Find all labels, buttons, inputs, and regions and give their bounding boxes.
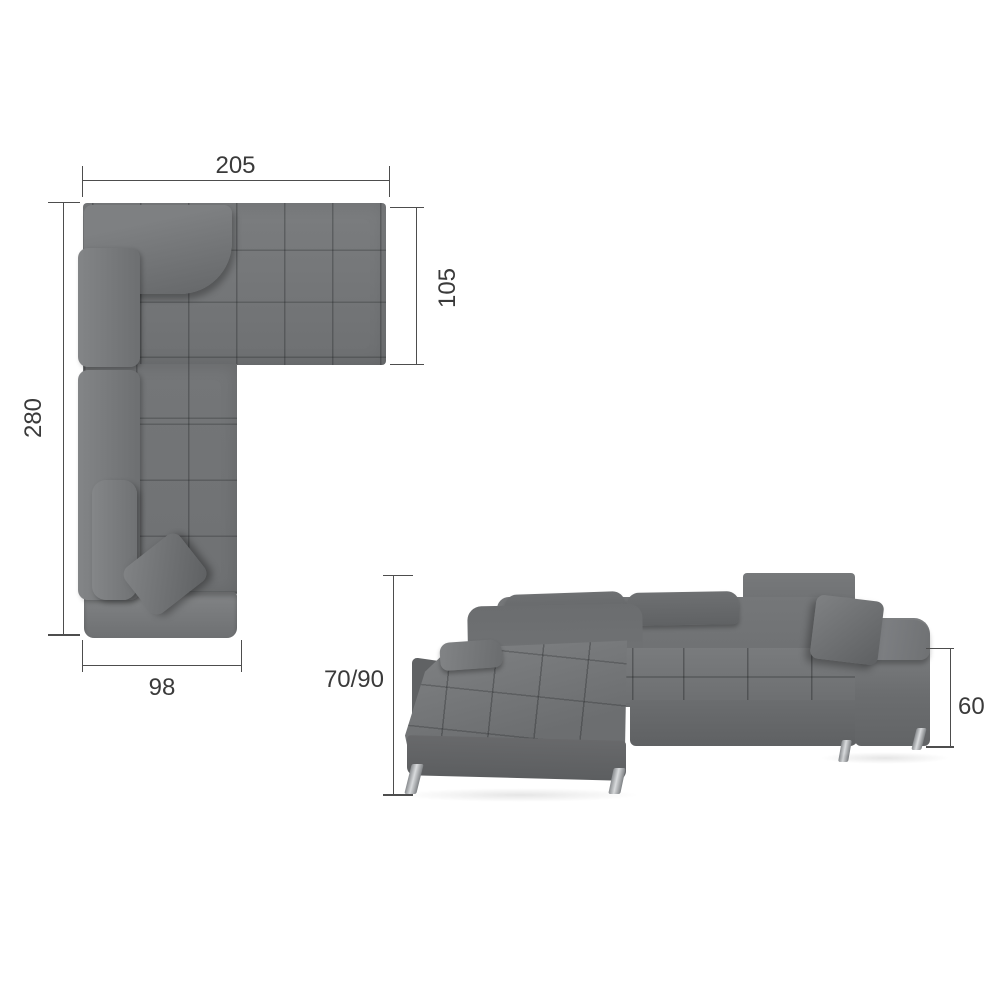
floor-shadow bbox=[820, 752, 950, 764]
dim-tick bbox=[383, 794, 413, 796]
dim-label-left-section-length: 280 bbox=[8, 392, 60, 444]
dim-label-text: 105 bbox=[436, 268, 460, 308]
front-view-headrest-middle bbox=[627, 591, 740, 626]
floor-shadow bbox=[400, 788, 640, 802]
dim-label-chaise-end-width: 98 bbox=[82, 676, 242, 700]
dim-line bbox=[950, 648, 952, 747]
dim-tick bbox=[241, 640, 243, 672]
front-view-armrest-left-pad bbox=[439, 639, 503, 671]
dim-tick bbox=[82, 640, 84, 672]
sofa-dimension-diagram: 205 105 280 98 bbox=[0, 0, 1000, 1000]
dim-label-backrest-height: 70/90 bbox=[318, 668, 384, 692]
dim-line bbox=[393, 575, 395, 795]
dim-tick bbox=[926, 648, 954, 650]
dim-tick bbox=[390, 364, 424, 366]
dim-tick bbox=[48, 202, 80, 204]
dim-label-text: 280 bbox=[22, 398, 46, 438]
dim-label-back-width: 205 bbox=[82, 154, 389, 178]
front-view-base bbox=[630, 700, 858, 746]
dim-tick bbox=[82, 166, 84, 197]
dim-line bbox=[63, 202, 65, 635]
dim-label-armrest-height: 60 bbox=[958, 695, 985, 719]
dim-line bbox=[82, 180, 389, 182]
front-view-chaise-front bbox=[407, 735, 626, 781]
dim-line bbox=[416, 207, 418, 365]
top-view-armrest-upper bbox=[78, 248, 140, 367]
dim-tick bbox=[389, 166, 391, 197]
front-view-pillow bbox=[809, 594, 884, 666]
dim-tick bbox=[390, 207, 424, 209]
dim-tick bbox=[383, 575, 413, 577]
front-view-seat-seam bbox=[617, 676, 860, 678]
dim-tick bbox=[926, 746, 954, 748]
dim-label-right-section-depth: 105 bbox=[420, 260, 476, 316]
dim-tick bbox=[48, 634, 80, 636]
dim-line bbox=[82, 665, 242, 667]
